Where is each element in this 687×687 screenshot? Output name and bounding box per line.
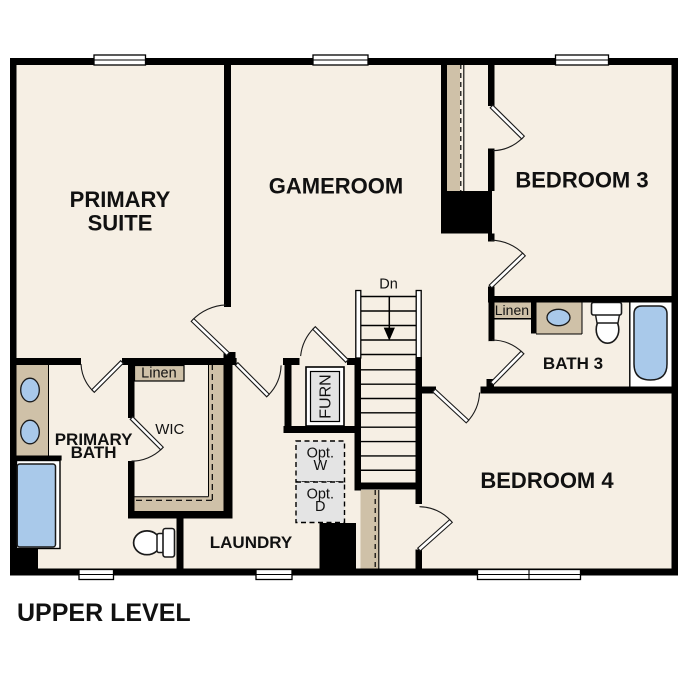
svg-text:PRIMARY: PRIMARY — [70, 187, 171, 212]
svg-text:BEDROOM 4: BEDROOM 4 — [480, 468, 614, 493]
svg-text:Linen: Linen — [495, 302, 529, 318]
svg-text:BATH 3: BATH 3 — [543, 354, 603, 373]
svg-text:W: W — [313, 458, 327, 474]
svg-text:LAUNDRY: LAUNDRY — [210, 533, 293, 552]
svg-text:SUITE: SUITE — [88, 211, 153, 236]
svg-text:BATH: BATH — [71, 443, 117, 462]
svg-text:BEDROOM 3: BEDROOM 3 — [515, 168, 648, 193]
svg-text:D: D — [315, 499, 325, 515]
svg-text:FURN: FURN — [318, 374, 335, 418]
svg-text:UPPER LEVEL: UPPER LEVEL — [17, 599, 191, 627]
svg-text:WIC: WIC — [155, 421, 184, 438]
svg-text:Dn: Dn — [379, 276, 398, 292]
svg-text:GAMEROOM: GAMEROOM — [269, 174, 403, 199]
svg-text:Linen: Linen — [141, 366, 176, 382]
